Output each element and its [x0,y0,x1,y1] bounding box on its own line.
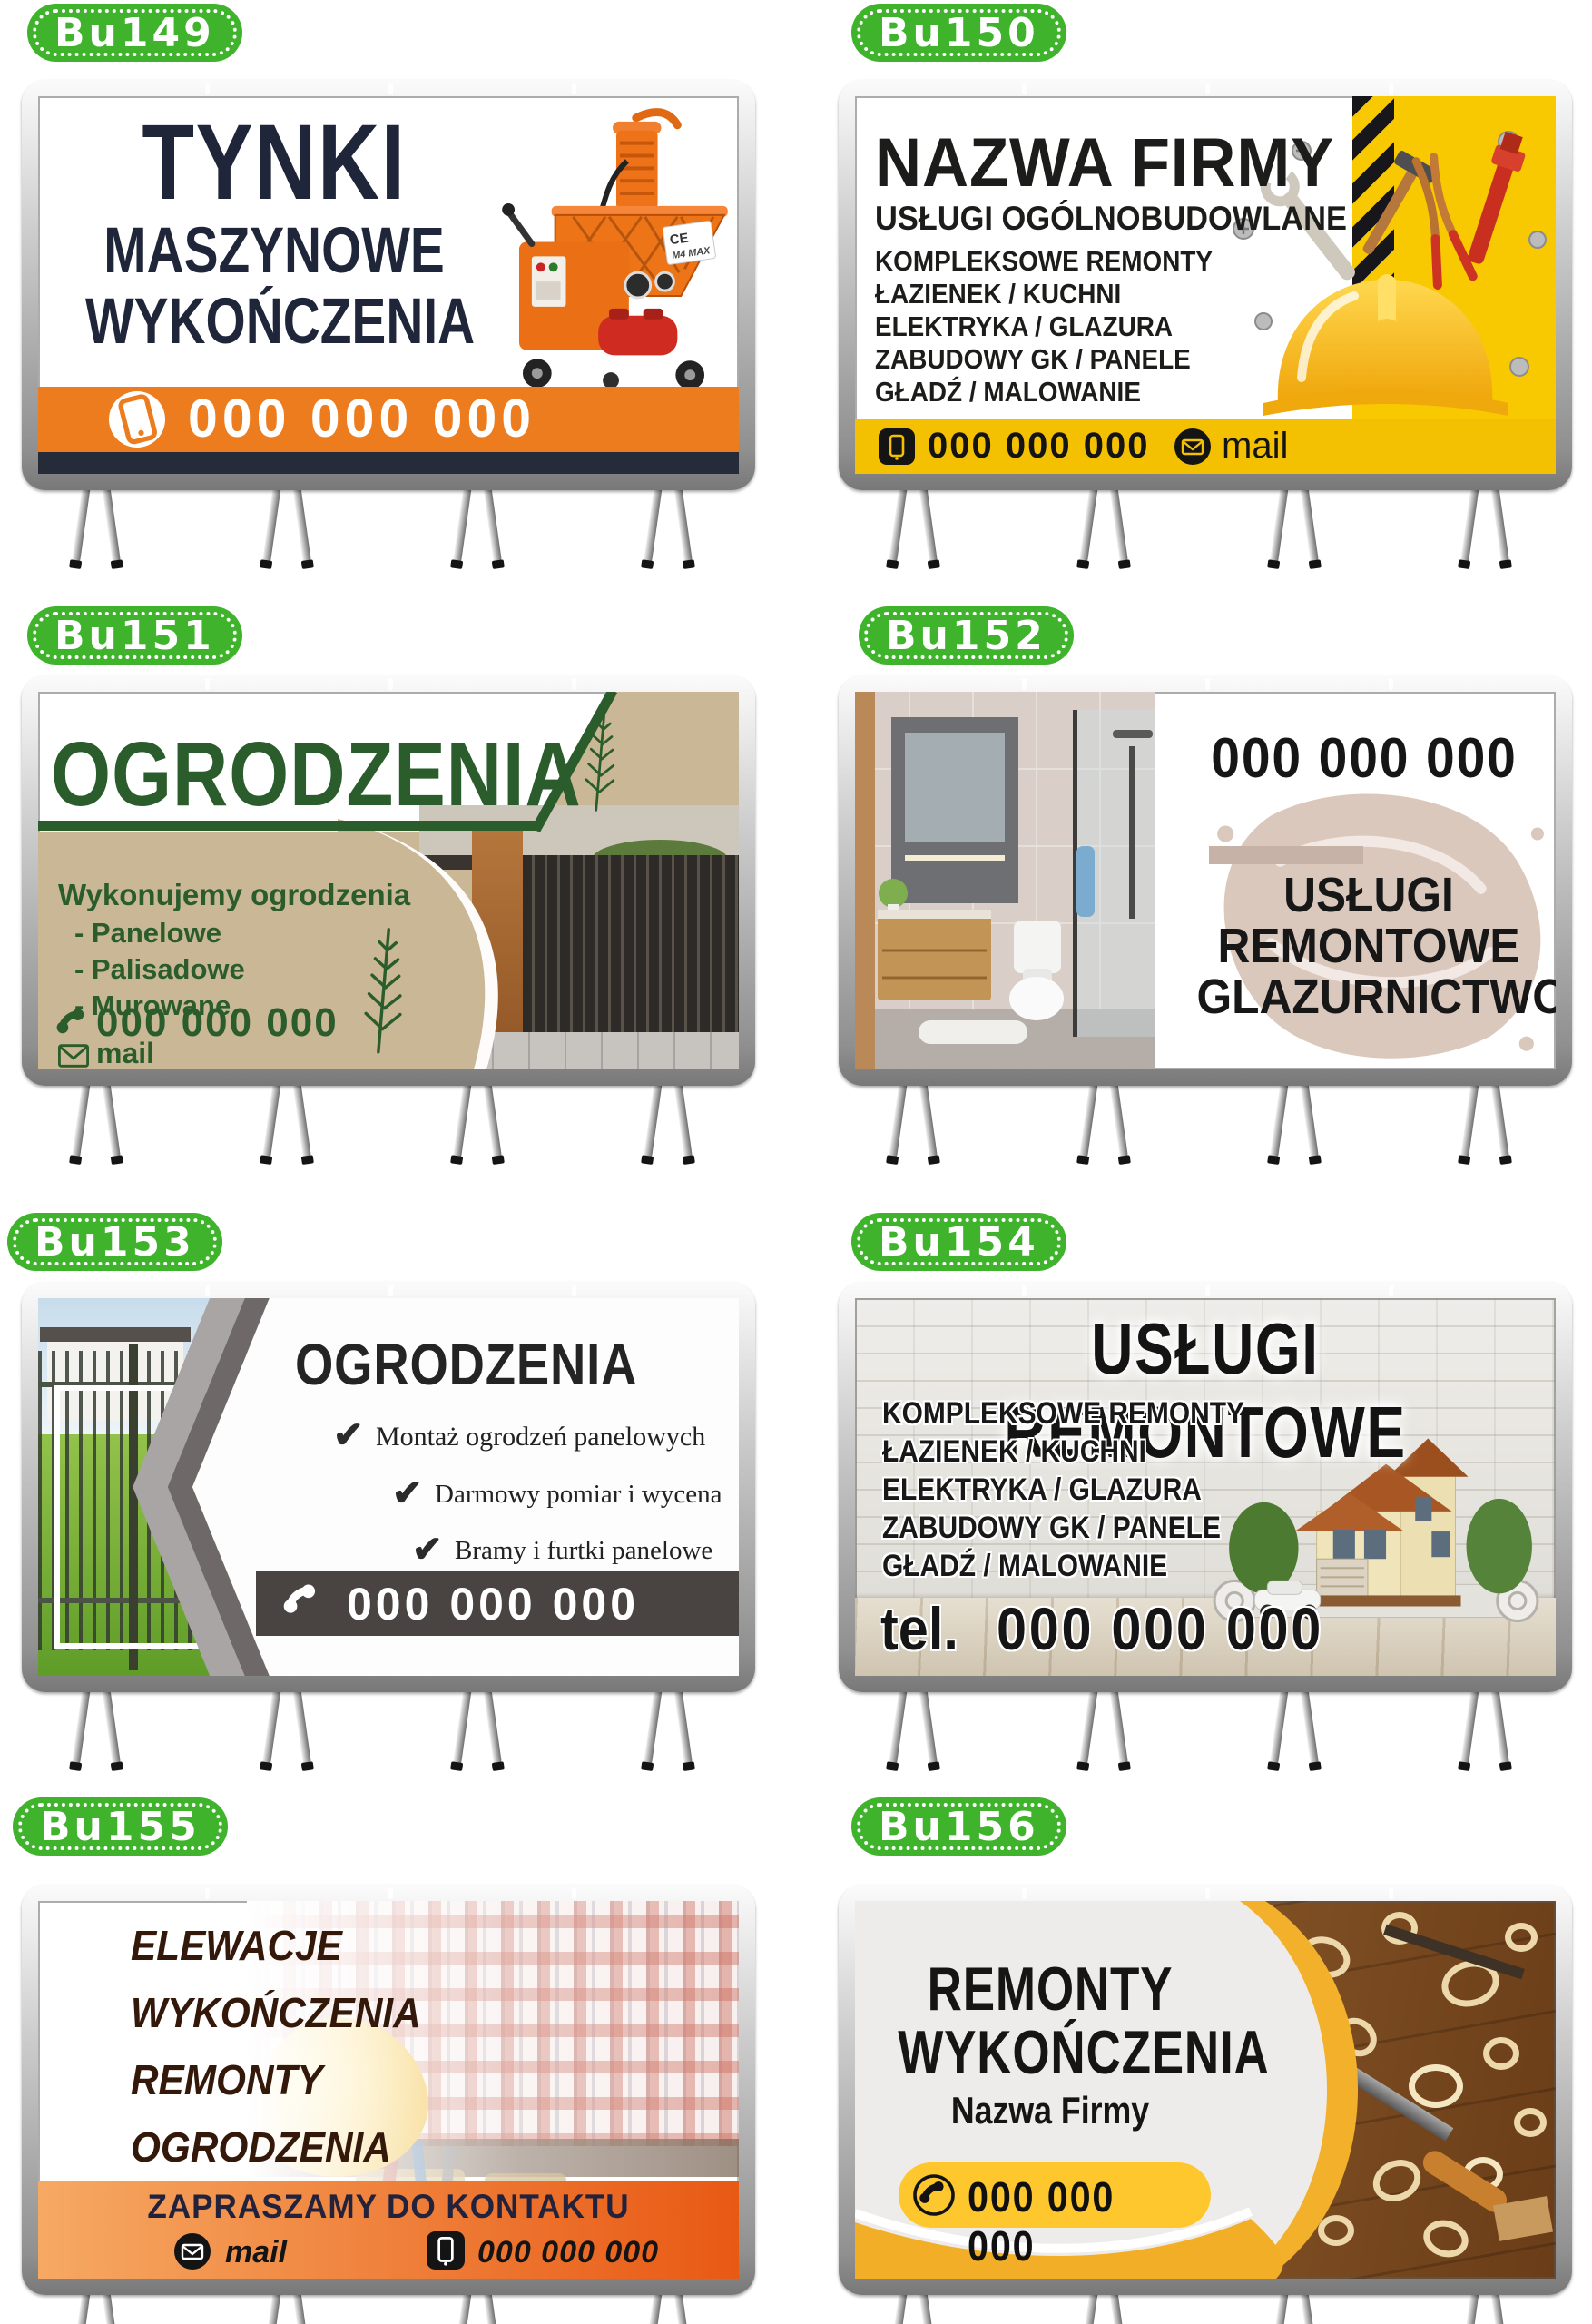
bu154-phone-row: tel. 000 000 000 [880,1594,1360,1663]
stand-bu152: 000 000 000 USŁUGI REMONTOWE GLAZURNICTW… [839,675,1572,1086]
banner-bu154: USŁUGI REMONTOWE KOMPLEKSOWE REMONTY ŁAZ… [855,1298,1556,1676]
check-icon: ✔ [333,1414,364,1456]
bu152-title: USŁUGI REMONTOWE GLAZURNICTWO [1182,870,1556,1022]
service-item: ELEKTRYKA / GLAZURA [882,1471,1244,1509]
bu155-mail: mail [225,2235,287,2270]
banner-bu153: OGRODZENIA ✔ Montaż ogrodzeń panelowych … [38,1298,739,1676]
photo-roof [40,1327,191,1342]
phone-circle-icon [911,2172,957,2222]
banner-frame: OGRODZENIA ✔ Montaż ogrodzeń panelowych … [22,1282,755,1692]
bu149-phone-bar: 000 000 000 [38,387,739,452]
smartphone-icon [109,391,165,448]
badge-bu152: Bu152 [859,606,1074,665]
stand-leg [78,1687,114,1765]
bu152-phone: 000 000 000 [1188,726,1540,791]
stand-leg [1086,485,1122,563]
bu155-item: OGRODZENIA [131,2122,391,2171]
bu156-company: Nazwa Firmy [884,2084,1216,2137]
banner-frame: TYNKI MASZYNOWE WYKOŃCZENIA [22,80,755,490]
stand-leg [650,1080,686,1158]
badge-bu153: Bu153 [7,1213,222,1271]
service-item: ŁAZIENEK / KUCHNI [875,278,1213,310]
bu152-title-line1: USŁUGI [1196,870,1540,921]
badge-bu155: Bu155 [13,1797,228,1856]
badge-bu150-label: Bu150 [879,10,1039,56]
plastering-machine-image: CE M4 MAX [496,105,732,389]
bu150-contact-strip: 000 000 000 mail [855,419,1556,474]
service-item: ZABUDOWY GK / PANELE [875,343,1213,376]
phone-handset-icon [56,1008,91,1047]
stand-leg [78,1080,114,1158]
bu152-title-line3: GLAZURNICTWO [1196,971,1540,1022]
banner-frame: NAZWA FIRMY USŁUGI OGÓLNOBUDOWLANE KOMPL… [839,80,1572,490]
badge-bu149-label: Bu149 [54,10,215,56]
stand-leg [1086,1687,1122,1765]
stand-leg [895,1687,931,1765]
stand-bu149: TYNKI MASZYNOWE WYKOŃCZENIA [22,80,755,490]
bu155-phone: 000 000 000 [477,2235,659,2270]
bu154-services-list: KOMPLEKSOWE REMONTY ŁAZIENEK / KUCHNI EL… [882,1394,1293,1585]
mail-circle-icon [174,2233,211,2274]
mail-circle-icon [1174,428,1211,469]
stand-leg [1467,485,1503,563]
badge-bu154-label: Bu154 [879,1219,1039,1265]
bu151-mail: mail [96,1037,154,1069]
stand-bu156: REMONTY WYKOŃCZENIA Nazwa Firmy 000 000 … [839,1885,1572,2295]
stand-leg [78,485,114,563]
stand-bu151: OGRODZENIA Wykonujemy ogrodzenia - Panel… [22,675,755,1086]
service-item: ŁAZIENEK / KUCHNI [882,1433,1244,1471]
bu150-company-name: NAZWA FIRMY [875,123,1334,202]
bu150-mail: mail [1222,426,1288,467]
fern-leaf-graphic [358,921,416,1057]
bu149-title: TYNKI MASZYNOWE WYKOŃCZENIA [38,109,510,358]
bu153-item: Darmowy pomiar i wycena [435,1480,722,1510]
banner-frame: 000 000 000 USŁUGI REMONTOWE GLAZURNICTW… [839,675,1572,1086]
check-icon: ✔ [392,1472,423,1514]
stand-leg [1276,1687,1312,1765]
bathroom-photo [855,692,1155,1069]
banner-frame: USŁUGI REMONTOWE KOMPLEKSOWE REMONTY ŁAZ… [839,1282,1572,1692]
banner-bu156: REMONTY WYKOŃCZENIA Nazwa Firmy 000 000 … [855,1901,1556,2279]
banner-frame: OGRODZENIA Wykonujemy ogrodzenia - Panel… [22,675,755,1086]
bu151-title: OGRODZENIA [51,723,582,827]
stand-leg [1086,1080,1122,1158]
banner-frame: ELEWACJE WYKOŃCZENIA REMONTY OGRODZENIA … [22,1885,755,2295]
bu150-phone: 000 000 000 [928,426,1149,467]
stand-leg [459,1687,496,1765]
bu156-phone: 000 000 000 [968,2172,1186,2270]
badge-bu154: Bu154 [851,1213,1066,1271]
bu153-item: Montaż ogrodzeń panelowych [376,1422,705,1452]
badge-bu153-label: Bu153 [34,1219,195,1265]
stand-bu154: USŁUGI REMONTOWE KOMPLEKSOWE REMONTY ŁAZ… [839,1282,1572,1692]
stand-bu155: ELEWACJE WYKOŃCZENIA REMONTY OGRODZENIA … [22,1885,755,2295]
banner-catalog-page: Bu149 TYNKI MASZYNOWE WYKOŃCZENIA [0,0,1592,2324]
banner-bu151: OGRODZENIA Wykonujemy ogrodzenia - Panel… [38,692,739,1069]
banner-bu149: TYNKI MASZYNOWE WYKOŃCZENIA [38,96,739,474]
bu149-title-line2: MASZYNOWE [85,216,463,287]
stand-leg [1467,1687,1503,1765]
machine-ce-mark: CE [669,231,690,249]
fence-type-item: - Panelowe [74,915,245,951]
service-item: KOMPLEKSOWE REMONTY [875,245,1213,278]
stand-bu150: NAZWA FIRMY USŁUGI OGÓLNOBUDOWLANE KOMPL… [839,80,1572,490]
bu152-title-line2: REMONTOWE [1196,921,1540,971]
badge-bu152-label: Bu152 [886,613,1047,659]
stand-leg [895,1080,931,1158]
envelope-icon [58,1044,89,1069]
service-item: KOMPLEKSOWE REMONTY [882,1394,1244,1433]
banner-bu152: 000 000 000 USŁUGI REMONTOWE GLAZURNICTW… [855,692,1556,1069]
phone-square-icon [879,428,915,469]
stand-bu153: OGRODZENIA ✔ Montaż ogrodzeń panelowych … [22,1282,755,1692]
phone-square-icon [427,2231,465,2274]
bu153-title: OGRODZENIA [295,1331,634,1398]
accent-bar [1209,846,1363,864]
banner-bu150: NAZWA FIRMY USŁUGI OGÓLNOBUDOWLANE KOMPL… [855,96,1556,474]
bu156-title-line2: WYKOŃCZENIA [898,2021,1202,2084]
stand-leg [269,1080,305,1158]
banner-frame: REMONTY WYKOŃCZENIA Nazwa Firmy 000 000 … [839,1885,1572,2295]
bu156-title-line1: REMONTY [898,1957,1202,2021]
stand-leg [269,485,305,563]
badge-bu151-label: Bu151 [54,613,215,659]
bu150-services-list: KOMPLEKSOWE REMONTY ŁAZIENEK / KUCHNI EL… [875,245,1250,409]
banner-bu155: ELEWACJE WYKOŃCZENIA REMONTY OGRODZENIA … [38,1901,739,2279]
service-item: ELEKTRYKA / GLAZURA [875,310,1213,343]
bu156-phone-pill: 000 000 000 [899,2162,1211,2228]
fence-type-item: - Palisadowe [74,951,245,988]
bu154-phone: 000 000 000 [997,1594,1323,1663]
phone-handset-icon [283,1583,323,1628]
stand-leg [650,485,686,563]
stand-leg [269,1687,305,1765]
badge-bu151: Bu151 [27,606,242,665]
bu155-item: ELEWACJE [131,1921,342,1970]
bu156-title: REMONTY WYKOŃCZENIA Nazwa Firmy [855,1957,1245,2137]
bu149-footer-strip [38,452,739,474]
stand-leg [459,485,496,563]
bu150-subtitle: USŁUGI OGÓLNOBUDOWLANE [875,200,1347,238]
bu149-title-line1: TYNKI [85,109,463,216]
stand-leg [1467,1080,1503,1158]
bu153-item: Bramy i furtki panelowe [455,1536,712,1566]
bu155-contact-bar: ZAPRASZAMY DO KONTAKTU mail 000 000 000 [38,2181,739,2279]
bu149-title-line3: WYKOŃCZENIA [85,287,463,358]
service-item: GŁADŹ / MALOWANIE [875,376,1213,409]
stand-leg [1276,485,1312,563]
bu153-phone-bar: 000 000 000 [256,1571,739,1636]
stand-leg [1276,1080,1312,1158]
bu155-item: REMONTY [131,2055,323,2104]
fern-leaf-graphic [579,706,626,813]
service-item: GŁADŹ / MALOWANIE [882,1547,1244,1585]
bu155-cta: ZAPRASZAMY DO KONTAKTU [55,2188,721,2226]
bu153-phone: 000 000 000 [347,1578,639,1630]
bu149-phone: 000 000 000 [188,388,536,449]
stand-leg [650,1687,686,1765]
stand-leg [459,1080,496,1158]
service-item: ZABUDOWY GK / PANELE [882,1509,1244,1547]
bu151-heading: Wykonujemy ogrodzenia [58,878,410,912]
check-icon: ✔ [412,1529,443,1571]
badge-bu149: Bu149 [27,4,242,62]
badge-bu150: Bu150 [851,4,1066,62]
bu155-item: WYKOŃCZENIA [131,1988,421,2037]
badge-bu155-label: Bu155 [40,1804,201,1850]
badge-bu156-label: Bu156 [879,1804,1039,1850]
badge-bu156: Bu156 [851,1797,1066,1856]
stand-leg [895,485,931,563]
bu154-phone-prefix: tel. [880,1594,958,1663]
